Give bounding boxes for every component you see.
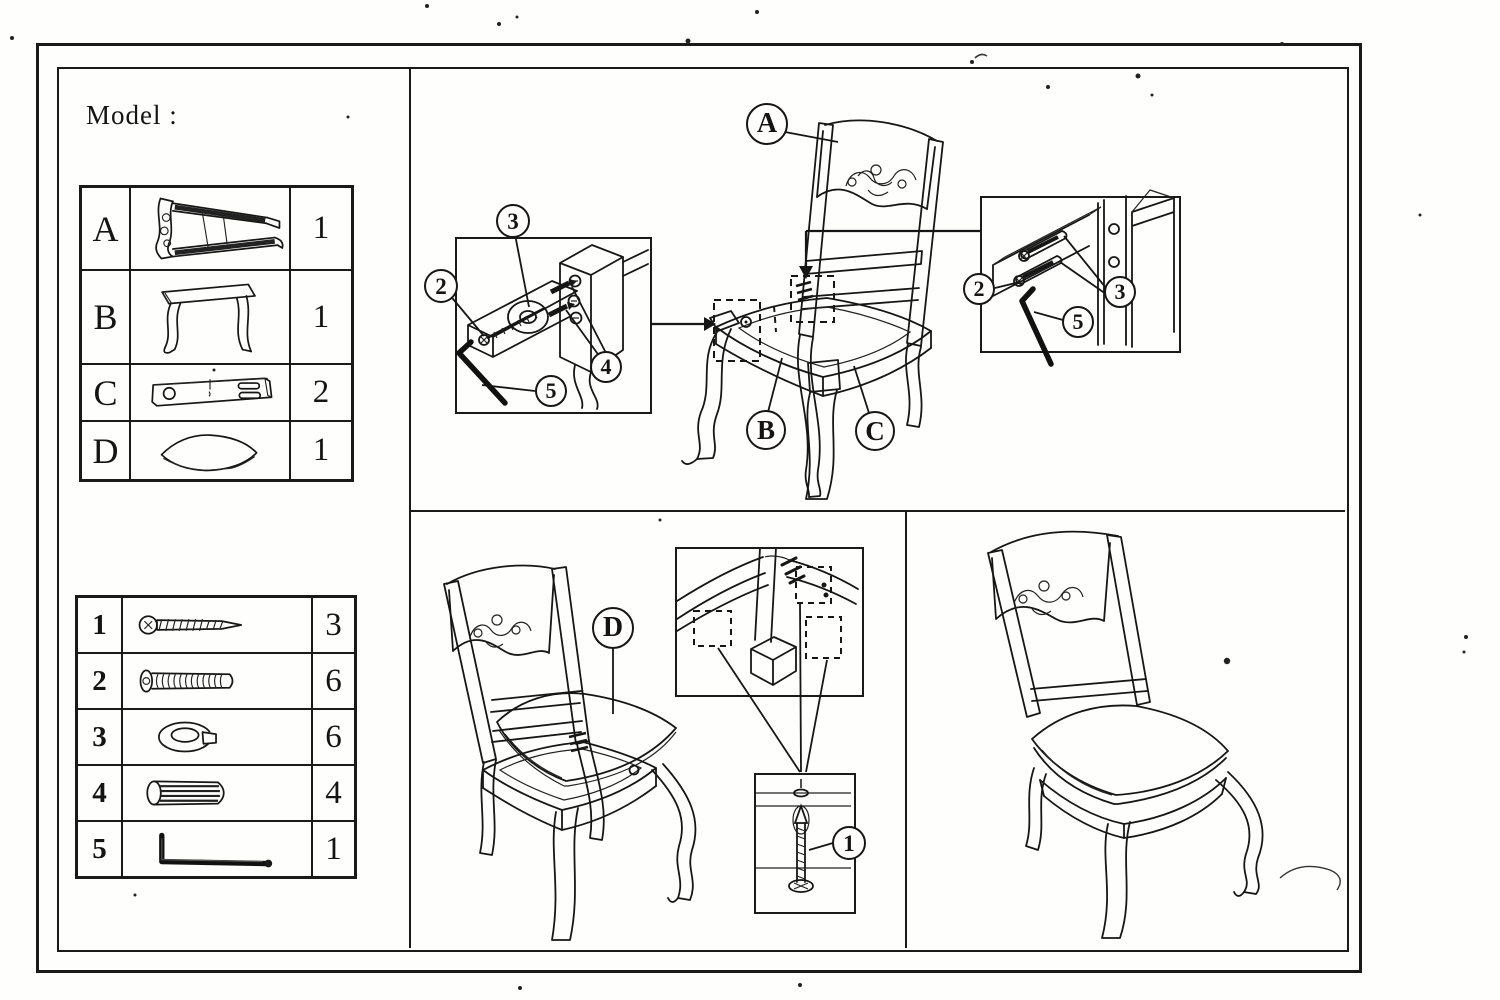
part-row-b-letter: B (81, 270, 130, 364)
callout-2-left-inset: 2 (424, 269, 458, 303)
hw-row-4-num: 4 (77, 765, 122, 821)
parts-table: A 1 B (79, 185, 354, 482)
assembly-instruction-sheet: Model : A 1 B (0, 0, 1500, 1000)
detail-box-seat-frame (675, 547, 864, 697)
callout-2-right-inset: 2 (963, 273, 995, 305)
hw-row-3-num: 3 (77, 709, 122, 765)
side-rail-bracket-icon (130, 364, 290, 421)
machine-bolt-icon (122, 653, 312, 709)
part-row-a-qty: 1 (290, 187, 352, 270)
left-column-divider (409, 67, 411, 948)
seat-cushion-icon (130, 421, 290, 480)
callout-C: C (855, 411, 895, 451)
horizontal-panel-divider (409, 510, 1345, 512)
callout-5-left-inset: 5 (535, 375, 567, 407)
hw-row-2-num: 2 (77, 653, 122, 709)
part-row-a-letter: A (81, 187, 130, 270)
hw-row-5-qty: 1 (312, 821, 355, 877)
hw-row-4-qty: 4 (312, 765, 355, 821)
callout-3-right-inset: 3 (1104, 276, 1136, 308)
hw-row-5-num: 5 (77, 821, 122, 877)
callout-A: A (746, 103, 788, 145)
front-leg-frame-icon (130, 270, 290, 364)
callout-1: 1 (832, 826, 866, 860)
wood-screw-icon (122, 597, 312, 653)
hardware-table: 1 3 2 6 3 (75, 595, 357, 879)
part-row-b-qty: 1 (290, 270, 352, 364)
part-row-c-letter: C (81, 364, 130, 421)
allen-key-icon (122, 821, 312, 877)
callout-B: B (746, 410, 786, 450)
hw-row-3-qty: 6 (312, 709, 355, 765)
hw-row-1-num: 1 (77, 597, 122, 653)
callout-4-left-inset: 4 (590, 351, 622, 383)
bottom-panel-divider (905, 510, 907, 948)
hw-row-1-qty: 3 (312, 597, 355, 653)
part-row-d-letter: D (81, 421, 130, 480)
callout-5-right-inset: 5 (1062, 306, 1094, 338)
hw-row-2-qty: 6 (312, 653, 355, 709)
callout-D: D (592, 607, 634, 649)
lock-washer-icon (122, 709, 312, 765)
wood-dowel-icon (122, 765, 312, 821)
part-row-c-qty: 2 (290, 364, 352, 421)
model-label: Model : (86, 100, 178, 131)
part-row-d-qty: 1 (290, 421, 352, 480)
callout-3-left-inset: 3 (496, 204, 530, 238)
chair-back-frame-icon (130, 187, 290, 270)
